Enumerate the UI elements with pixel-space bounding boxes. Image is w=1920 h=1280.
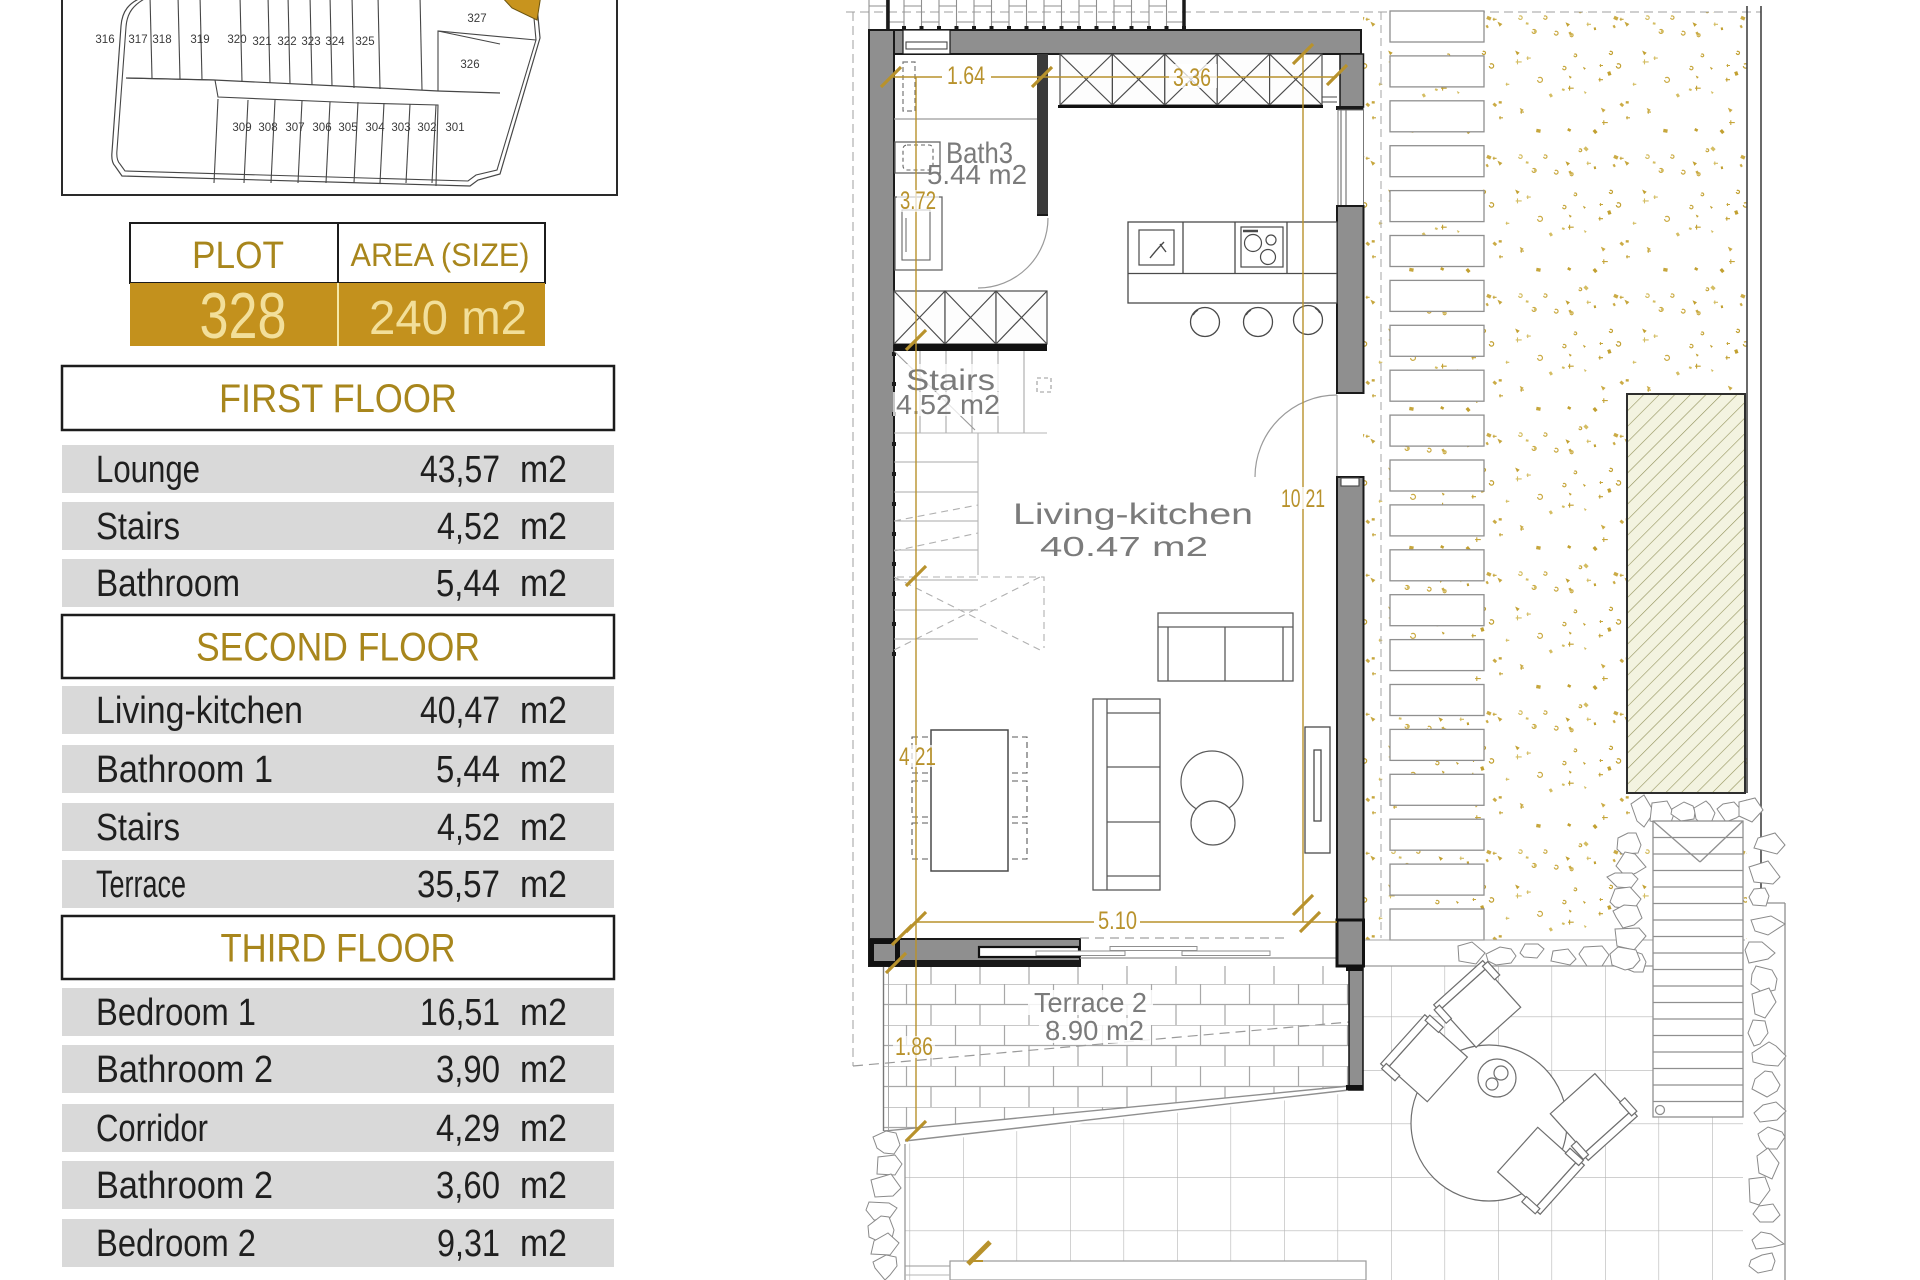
svg-text:318: 318 [152, 34, 171, 46]
svg-text:Bathroom: Bathroom [96, 563, 240, 605]
svg-text:Living-kitchen: Living-kitchen [96, 690, 303, 732]
svg-text:327: 327 [467, 13, 486, 25]
svg-text:m2: m2 [520, 864, 567, 906]
svg-text:m2: m2 [520, 506, 567, 548]
svg-text:4,52: 4,52 [437, 506, 500, 548]
svg-text:40,47: 40,47 [420, 690, 500, 732]
svg-text:321: 321 [252, 36, 271, 48]
svg-text:309: 309 [232, 122, 251, 134]
svg-text:SECOND FLOOR: SECOND FLOOR [196, 626, 480, 670]
svg-text:m2: m2 [520, 1049, 567, 1091]
svg-text:m2: m2 [520, 807, 567, 849]
svg-text:302: 302 [417, 122, 436, 134]
svg-text:4 21: 4 21 [899, 743, 936, 771]
svg-text:FIRST FLOOR: FIRST FLOOR [219, 377, 457, 421]
svg-text:Stairs: Stairs [96, 506, 180, 548]
svg-text:4,29: 4,29 [436, 1108, 500, 1150]
svg-text:306: 306 [312, 122, 331, 134]
svg-text:3,90: 3,90 [436, 1049, 500, 1091]
svg-text:316: 316 [95, 34, 114, 46]
svg-text:5.44 m2: 5.44 m2 [927, 159, 1027, 190]
svg-text:320: 320 [227, 34, 246, 46]
svg-text:m2: m2 [520, 1165, 567, 1207]
svg-text:Stairs: Stairs [96, 807, 180, 849]
svg-text:319: 319 [190, 34, 209, 46]
svg-text:9,31: 9,31 [437, 1223, 500, 1265]
svg-text:10 21: 10 21 [1281, 485, 1325, 513]
svg-text:328: 328 [200, 279, 287, 352]
svg-text:Lounge: Lounge [96, 449, 200, 491]
svg-text:4,52: 4,52 [437, 807, 500, 849]
svg-text:35,57: 35,57 [417, 864, 500, 906]
svg-text:m2: m2 [520, 1223, 567, 1265]
svg-text:THIRD FLOOR: THIRD FLOOR [221, 927, 456, 971]
svg-text:Bathroom 2: Bathroom 2 [96, 1165, 273, 1207]
svg-text:40.47 m2: 40.47 m2 [1040, 531, 1208, 562]
svg-text:Bedroom 1: Bedroom 1 [96, 992, 256, 1034]
svg-text:m2: m2 [520, 563, 567, 605]
svg-text:323: 323 [301, 36, 320, 48]
svg-text:16,51: 16,51 [420, 992, 500, 1034]
svg-text:325: 325 [355, 36, 374, 48]
svg-text:m2: m2 [520, 749, 567, 791]
svg-text:3.72: 3.72 [900, 187, 936, 215]
svg-text:326: 326 [460, 59, 479, 71]
svg-text:1.64: 1.64 [947, 62, 985, 90]
svg-text:Living-kitchen: Living-kitchen [1013, 498, 1253, 531]
svg-text:4.52 m2: 4.52 m2 [896, 389, 1000, 420]
svg-text:304: 304 [365, 122, 385, 134]
svg-text:5,44: 5,44 [436, 563, 500, 605]
svg-text:Bedroom 2: Bedroom 2 [96, 1223, 256, 1265]
svg-text:Terrace 2: Terrace 2 [1034, 987, 1147, 1018]
svg-text:317: 317 [128, 34, 147, 46]
svg-text:305: 305 [338, 122, 357, 134]
svg-text:3.36: 3.36 [1173, 64, 1211, 92]
svg-text:308: 308 [258, 122, 277, 134]
svg-text:Bathroom 2: Bathroom 2 [96, 1049, 273, 1091]
svg-text:307: 307 [285, 122, 304, 134]
svg-text:m2: m2 [520, 1108, 567, 1150]
svg-text:Terrace: Terrace [96, 864, 186, 906]
svg-text:Bathroom 1: Bathroom 1 [96, 749, 273, 791]
svg-text:m2: m2 [520, 992, 567, 1034]
svg-text:5.10: 5.10 [1098, 907, 1137, 935]
svg-text:322: 322 [277, 36, 296, 48]
svg-text:303: 303 [391, 122, 410, 134]
svg-text:3,60: 3,60 [436, 1165, 500, 1207]
svg-text:PLOT: PLOT [192, 235, 284, 277]
svg-text:43,57: 43,57 [420, 449, 500, 491]
svg-text:Corridor: Corridor [96, 1108, 208, 1150]
svg-text:AREA (SIZE): AREA (SIZE) [351, 237, 530, 273]
svg-text:8.90 m2: 8.90 m2 [1045, 1015, 1144, 1046]
svg-text:324: 324 [325, 36, 345, 48]
svg-text:240 m2: 240 m2 [369, 292, 527, 345]
svg-text:m2: m2 [520, 449, 567, 491]
svg-text:m2: m2 [520, 690, 567, 732]
svg-text:1.86: 1.86 [895, 1033, 933, 1061]
svg-text:5,44: 5,44 [436, 749, 500, 791]
svg-text:301: 301 [445, 122, 464, 134]
